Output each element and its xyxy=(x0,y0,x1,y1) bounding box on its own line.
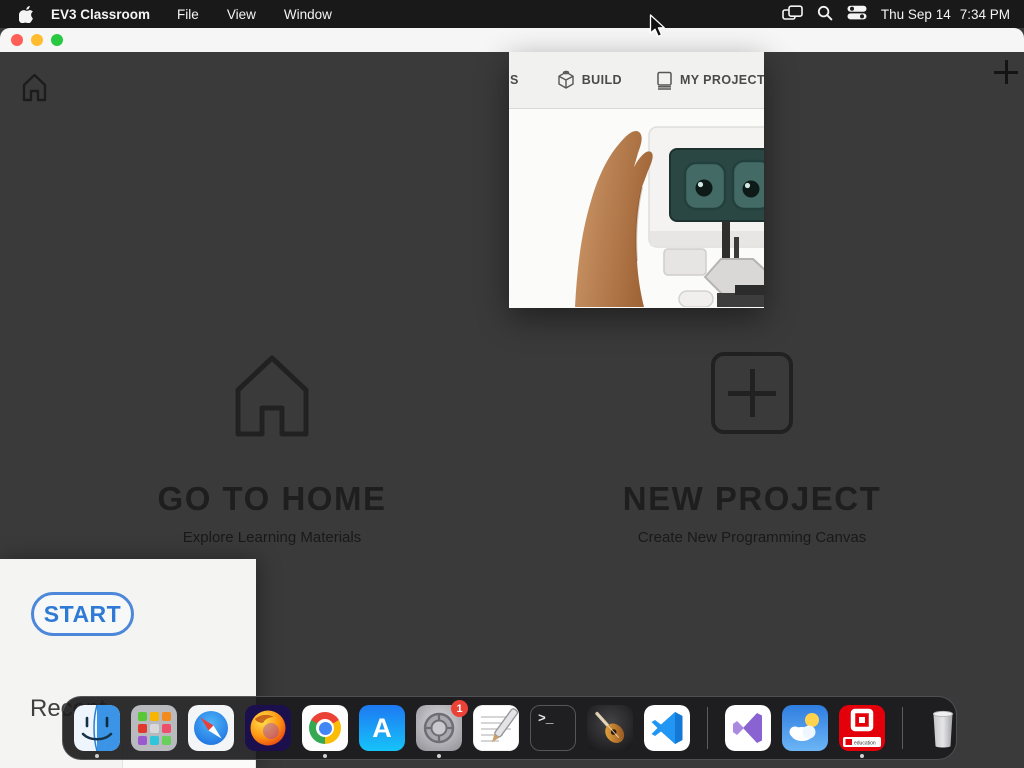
dock-appstore-icon[interactable]: A xyxy=(359,705,405,751)
dock-textedit-icon[interactable] xyxy=(473,705,519,751)
new-project-title: NEW PROJECT xyxy=(612,480,892,518)
dock-launchpad-icon[interactable] xyxy=(131,705,177,751)
notebook-icon xyxy=(656,71,673,90)
close-button[interactable] xyxy=(11,34,23,46)
go-to-home-title: GO TO HOME xyxy=(132,480,412,518)
tab-build[interactable]: BUILD xyxy=(557,70,622,90)
home-outline-icon xyxy=(132,352,412,442)
new-project-subtitle: Create New Programming Canvas xyxy=(612,529,892,546)
dock-separator xyxy=(707,707,708,749)
plus-icon[interactable] xyxy=(994,60,1018,84)
desktop: { "menu_bar": { "app_name": "EV3 Classro… xyxy=(0,0,1024,768)
popup-tab-bar: S BUILD MY PROJECTS xyxy=(509,52,764,109)
go-to-home-button[interactable]: GO TO HOME Explore Learning Materials xyxy=(132,352,412,546)
dock-garageband-icon[interactable] xyxy=(587,705,633,751)
menu-file[interactable]: File xyxy=(163,7,213,22)
menu-window[interactable]: Window xyxy=(270,7,346,22)
dock-settings-icon[interactable]: 1 xyxy=(416,705,462,751)
menu-bar-right: Thu Sep 14 7:34 PM xyxy=(782,5,1024,24)
tab-my-projects[interactable]: MY PROJECTS xyxy=(656,71,764,90)
clock-time: 7:34 PM xyxy=(960,7,1010,22)
dock-firefox-icon[interactable] xyxy=(245,705,291,751)
robot-photo xyxy=(509,109,764,307)
dock-vscode-icon[interactable] xyxy=(644,705,690,751)
tab-my-projects-label: MY PROJECTS xyxy=(680,73,764,87)
dock-visualstudio-icon[interactable] xyxy=(725,705,771,751)
dock-finder-icon[interactable] xyxy=(74,705,120,751)
menu-view[interactable]: View xyxy=(213,7,270,22)
home-icon[interactable] xyxy=(21,71,48,108)
dock: A 1 xyxy=(62,696,957,760)
menu-bar: EV3 Classroom File View Window xyxy=(0,0,1024,28)
dock-trash-icon[interactable] xyxy=(920,705,966,751)
apple-menu[interactable] xyxy=(10,6,42,23)
clock-date: Thu Sep 14 xyxy=(881,7,951,22)
ev3-education-label: education xyxy=(854,740,876,746)
menu-clock[interactable]: Thu Sep 14 7:34 PM xyxy=(881,7,1010,22)
settings-badge: 1 xyxy=(451,700,468,717)
tab-build-label: BUILD xyxy=(582,73,622,87)
window-title-bar[interactable] xyxy=(0,28,1024,52)
control-center-icon[interactable] xyxy=(847,5,867,23)
mouse-cursor xyxy=(649,14,667,45)
dock-terminal-icon[interactable]: >_ xyxy=(530,705,576,751)
zoom-button[interactable] xyxy=(51,34,63,46)
menu-app-name[interactable]: EV3 Classroom xyxy=(42,7,163,22)
plus-square-icon xyxy=(612,352,892,442)
dock-separator xyxy=(902,707,903,749)
go-to-home-subtitle: Explore Learning Materials xyxy=(132,529,412,546)
new-project-button[interactable]: NEW PROJECT Create New Programming Canva… xyxy=(612,352,892,546)
dock-ev3-classroom-icon[interactable]: education xyxy=(839,705,885,751)
minimize-button[interactable] xyxy=(31,34,43,46)
spotlight-search-icon[interactable] xyxy=(817,5,833,24)
dock-safari-icon[interactable] xyxy=(188,705,234,751)
dock-weather-icon[interactable] xyxy=(782,705,828,751)
tab-partial[interactable]: S xyxy=(510,73,519,87)
traffic-lights xyxy=(11,34,63,46)
dock-chrome-icon[interactable] xyxy=(302,705,348,751)
window-mirroring-icon[interactable] xyxy=(782,5,803,24)
popup-panel: S BUILD MY PROJECTS xyxy=(509,52,764,308)
menu-bar-left: EV3 Classroom File View Window xyxy=(0,6,346,23)
apple-logo-icon xyxy=(19,6,34,23)
start-button[interactable]: START xyxy=(31,592,134,636)
lego-brick-icon xyxy=(557,70,575,90)
